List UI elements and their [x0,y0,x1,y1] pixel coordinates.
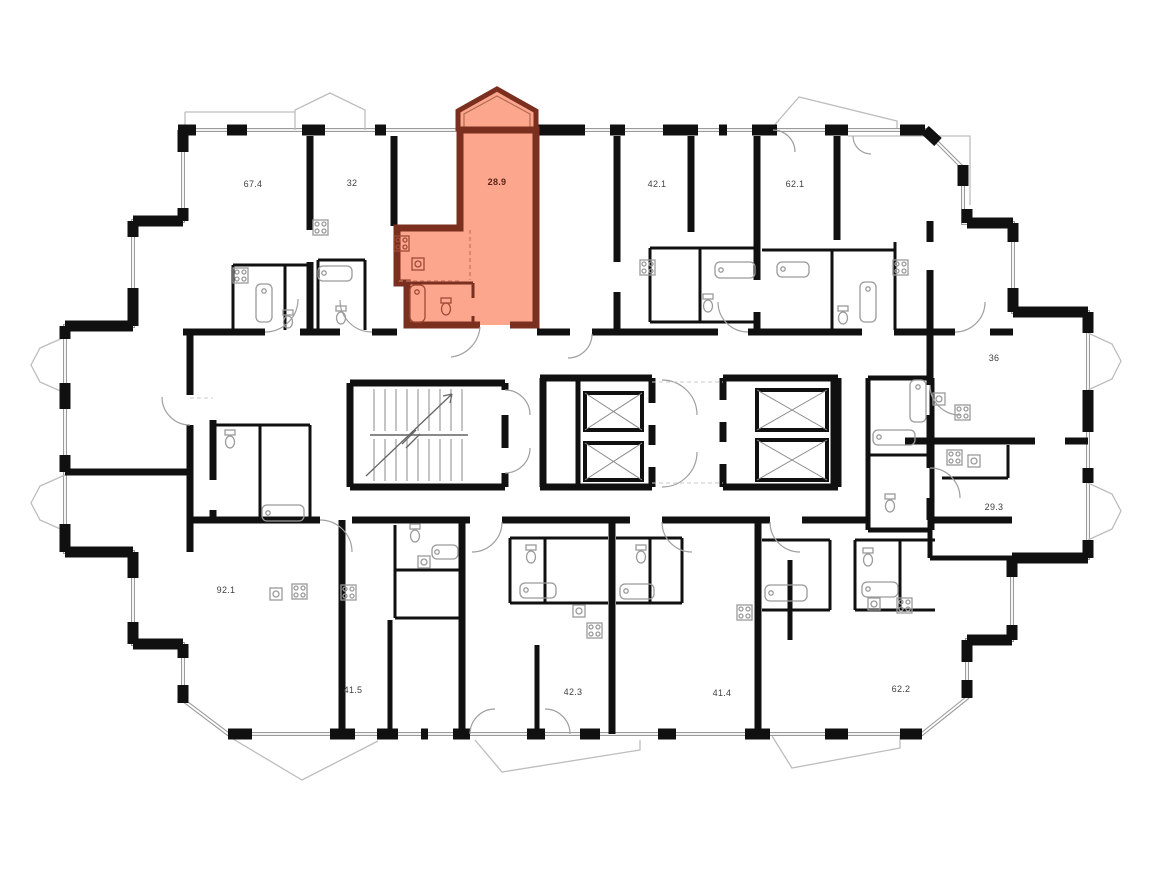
unit-62.2-label[interactable]: 62.2 [886,680,917,698]
sink-icon [573,605,585,617]
elevator-icon [585,443,642,480]
unit-36-label[interactable]: 36 [983,349,1006,367]
bathtub-icon [860,282,876,322]
stove-icon [947,450,962,465]
unit-29.3-label[interactable]: 29.3 [979,498,1010,516]
toilet-icon [838,306,848,324]
unit-41.5-label[interactable]: 41.5 [338,681,369,699]
unit-32-label[interactable]: 32 [341,174,364,192]
bathtub-icon [862,582,898,597]
bathtub-icon [520,583,556,598]
bathtub-icon [777,262,809,277]
toilet-icon [526,545,536,563]
bathtub-icon [318,266,352,281]
stove-icon [587,623,602,638]
elevator-icon [585,393,642,430]
toilet-icon [885,494,895,512]
sink-icon [868,598,880,610]
toilet-icon [410,524,420,542]
sink-icon [270,588,282,600]
unit-42.3-label[interactable]: 42.3 [558,683,589,701]
bathtub-icon [715,262,755,278]
unit-67.4-label[interactable]: 67.4 [238,175,269,193]
unit-42.1-label[interactable]: 42.1 [642,175,673,193]
bathtub-icon [765,585,807,601]
sink-icon [933,393,945,405]
elevator-shafts [585,390,827,480]
toilet-icon [703,294,713,312]
unit-92.1-label[interactable]: 92.1 [211,581,242,599]
sink-icon [968,455,980,467]
toilet-icon [225,430,235,448]
interior-walls [65,136,1088,734]
floor-plan-page: 67.4 32 28.9 42.1 62.1 36 29.3 92.1 41.5… [0,0,1150,869]
unit-28.9-label[interactable]: 28.9 [482,173,513,191]
bathtub-icon [256,284,272,322]
stove-icon [737,605,752,620]
unit-62.1-label[interactable]: 62.1 [780,175,811,193]
bathtub-icon [432,545,458,559]
bathtub-icon [910,380,926,422]
sink-icon [418,556,430,568]
stove-icon [233,268,248,283]
stove-icon [640,260,655,275]
toilet-icon [863,548,873,566]
unit-41.4-label[interactable]: 41.4 [707,684,738,702]
toilet-icon [636,545,646,563]
stove-icon [292,584,307,599]
stove-icon [955,405,970,420]
floor-plan [0,0,1150,869]
elevator-icon [757,440,827,480]
elevator-icon [757,390,827,430]
door-arcs [162,130,985,734]
selected-apartment-outline [397,130,536,325]
staircase-icon [366,389,468,481]
stove-icon [313,220,328,235]
selected-apartment-bay-window [458,89,536,131]
